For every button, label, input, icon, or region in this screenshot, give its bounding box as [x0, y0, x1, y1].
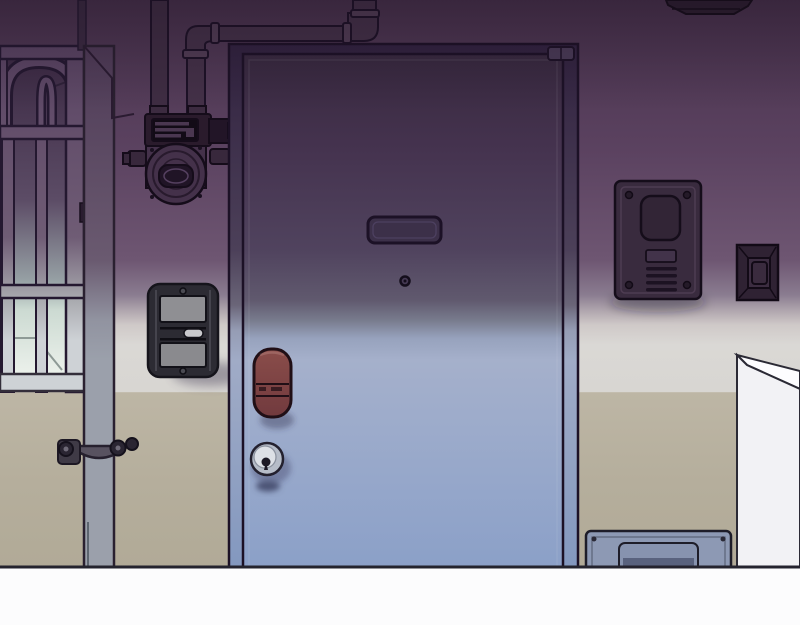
gate-bar-2: [36, 126, 47, 392]
meter-cap-left: [123, 153, 130, 164]
hatch-screw-left: [592, 537, 597, 542]
drain-pipe-body: [84, 46, 114, 567]
clamp-nut-right: [126, 438, 138, 450]
panel-camera-window: [641, 196, 680, 240]
shoe-cabinet: [737, 355, 800, 567]
intercom-groove-2: [160, 338, 206, 341]
floor: [0, 566, 800, 625]
gate-bar-1: [2, 126, 14, 392]
scene-illustration: [0, 0, 800, 625]
door-slab: [243, 54, 563, 568]
meter-nub-right: [210, 149, 230, 164]
door-phone-panel: [610, 181, 706, 312]
intercom-top-panel: [160, 296, 206, 322]
intercom-screw-top: [180, 288, 186, 294]
intercom-pill-button: [184, 329, 203, 338]
top-vignette: [0, 0, 800, 110]
hatch-screw-right: [721, 537, 726, 542]
door-nameplate: [368, 217, 441, 243]
intercom-bottom-panel: [160, 343, 206, 367]
door-peephole: [401, 277, 410, 286]
gate-rail-bottom: [0, 374, 86, 391]
intercom-screw-bottom: [180, 368, 186, 374]
knob-cast-shadow: [256, 481, 280, 492]
floor-hatch: [586, 531, 731, 571]
doorbell-button: [737, 245, 778, 300]
cabinet-front-face: [737, 355, 800, 567]
scene-stage: [0, 0, 800, 625]
panel-call-button: [646, 250, 676, 262]
entrance-door: [229, 44, 578, 568]
floor-line: [0, 566, 800, 569]
gate-rail-2: [0, 285, 86, 298]
clamp-bolt-right-hl: [116, 446, 121, 451]
clamp-bolt-left-hl: [64, 447, 69, 452]
peephole-center: [404, 280, 407, 283]
gate-rail-1: [0, 126, 86, 139]
bell-push: [752, 262, 767, 284]
meter-register-digits: [155, 122, 194, 138]
floor-strip: [0, 567, 800, 625]
nameplate-slot: [368, 217, 441, 243]
